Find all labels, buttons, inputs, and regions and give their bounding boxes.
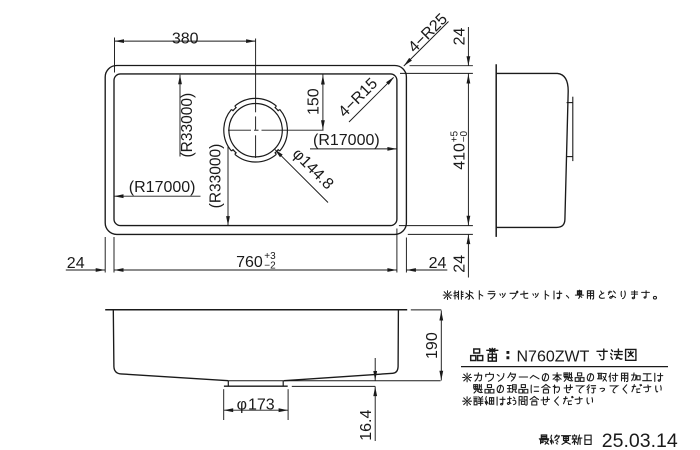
svg-text:24: 24 <box>429 255 447 272</box>
svg-text:N760ZWT: N760ZWT <box>517 348 590 365</box>
svg-text:φ: φ <box>237 396 247 413</box>
svg-text:24: 24 <box>451 28 468 46</box>
svg-text:−0: −0 <box>459 130 470 142</box>
svg-text:24: 24 <box>67 255 85 272</box>
svg-text:(R17000): (R17000) <box>313 132 380 149</box>
svg-text:24: 24 <box>451 255 468 273</box>
svg-text:173: 173 <box>248 396 275 413</box>
svg-text:16.4: 16.4 <box>358 410 375 441</box>
svg-text:25.03.14: 25.03.14 <box>602 430 678 450</box>
svg-text:150: 150 <box>306 88 323 115</box>
svg-text:380: 380 <box>172 31 199 48</box>
svg-text:760: 760 <box>236 254 263 271</box>
svg-text:(R17000): (R17000) <box>129 179 196 196</box>
svg-text:190: 190 <box>424 332 441 359</box>
svg-text:(R33000): (R33000) <box>179 93 196 158</box>
svg-text:(R33000): (R33000) <box>207 144 224 209</box>
svg-text:−2: −2 <box>264 260 276 271</box>
svg-text:410: 410 <box>452 143 469 170</box>
